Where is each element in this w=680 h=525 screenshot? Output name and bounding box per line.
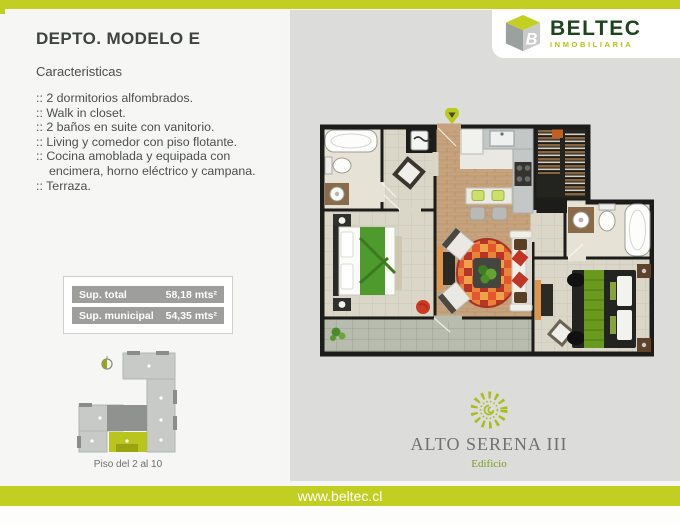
stove-icon xyxy=(515,162,532,186)
brand-tagline: INMOBILIARIA xyxy=(550,40,641,49)
wall-mass xyxy=(533,199,567,213)
keyplan-footprint xyxy=(77,351,177,452)
brochure-page: DEPTO. MODELO E Caracteristicas :: 2 dor… xyxy=(0,0,680,525)
sofa xyxy=(510,231,532,311)
logo-letter: B xyxy=(526,30,538,48)
toilet-icon xyxy=(333,158,351,173)
keyplan-caption: Piso del 2 al 10 xyxy=(58,459,198,470)
walk-in-closet xyxy=(535,127,588,199)
feature-item: :: Living y comedor con piso flotante. xyxy=(36,135,286,150)
entry-closet xyxy=(406,127,435,153)
feature-item: :: Walk in closet. xyxy=(36,106,286,121)
project-type: Edificio xyxy=(389,458,589,470)
bathtub-icon xyxy=(625,204,650,256)
floor-plan xyxy=(320,108,654,360)
surface-label: Sup. total xyxy=(79,289,127,301)
toilet-tank xyxy=(599,204,615,210)
beltec-logo-card: B BELTEC INMOBILIARIA xyxy=(492,10,680,58)
feature-item: :: 2 dormitorios alfombrados. xyxy=(36,91,286,106)
north-compass-icon xyxy=(102,356,112,369)
feature-item: :: 2 baños en suite con vanitorio. xyxy=(36,120,286,135)
bed-1 xyxy=(333,226,395,296)
top-accent-tab xyxy=(0,9,5,14)
brand-name: BELTEC xyxy=(550,19,641,39)
location-pin-icon xyxy=(445,108,459,124)
footer-bar: www.beltec.cl xyxy=(0,486,680,506)
project-logo: ALTO SERENA III Edificio xyxy=(389,388,589,470)
surface-value: 54,35 mts² xyxy=(166,310,217,322)
beltec-cube-icon: B xyxy=(504,13,542,55)
bottom-strip xyxy=(0,506,680,525)
features-list: :: 2 dormitorios alfombrados. :: Walk in… xyxy=(36,91,286,193)
surface-row-total: Sup. total 58,18 mts² xyxy=(72,286,224,303)
bed-2 xyxy=(567,270,636,348)
project-name: ALTO SERENA III xyxy=(389,434,589,455)
building-keyplan xyxy=(70,348,185,456)
surface-label: Sup. municipal xyxy=(79,310,154,322)
sun-icon xyxy=(467,388,511,432)
page-title: DEPTO. MODELO E xyxy=(36,29,200,49)
top-accent-bar xyxy=(0,0,680,9)
desk xyxy=(541,284,553,316)
toilet-icon xyxy=(599,211,615,231)
pouf xyxy=(416,300,430,314)
feature-item: :: Cocina amoblada y equipada con encime… xyxy=(36,149,286,178)
feature-item: :: Terraza. xyxy=(36,179,286,194)
desk xyxy=(443,252,455,285)
surface-row-municipal: Sup. municipal 54,35 mts² xyxy=(72,307,224,324)
toilet-tank xyxy=(325,157,332,174)
surface-value: 58,18 mts² xyxy=(166,289,217,301)
bathtub-icon xyxy=(325,130,377,152)
features-heading: Caracteristicas xyxy=(36,64,122,79)
footer-url-link[interactable]: www.beltec.cl xyxy=(298,486,383,506)
surface-table: Sup. total 58,18 mts² Sup. municipal 54,… xyxy=(63,276,233,334)
plan-panel: B BELTEC INMOBILIARIA xyxy=(290,10,680,481)
